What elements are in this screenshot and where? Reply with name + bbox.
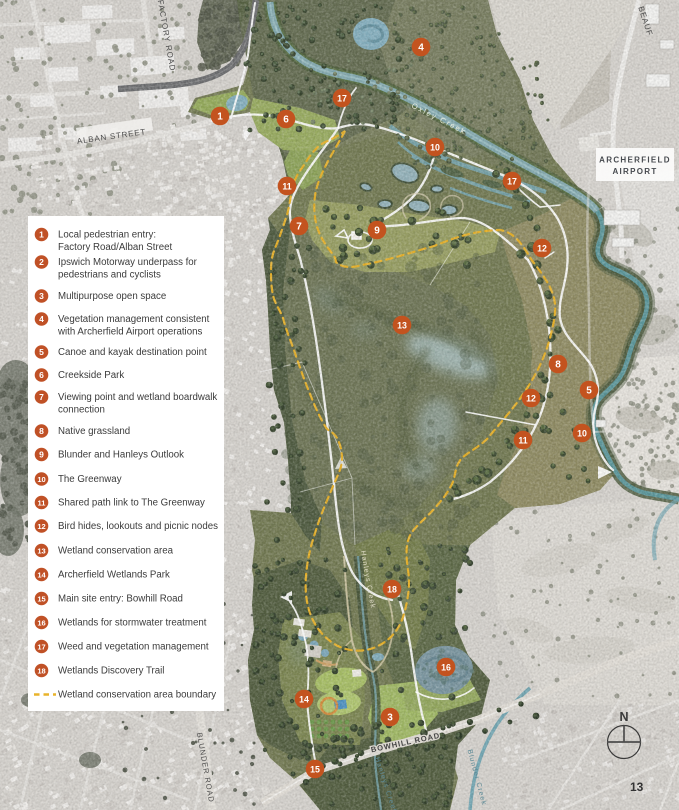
svg-text:Ipswich Motorway underpass for: Ipswich Motorway underpass for [58, 257, 198, 268]
svg-text:10: 10 [37, 475, 45, 484]
svg-text:AIRPORT: AIRPORT [612, 167, 657, 176]
svg-text:11: 11 [38, 498, 46, 507]
svg-text:9: 9 [374, 226, 380, 237]
svg-text:4: 4 [39, 314, 44, 324]
svg-text:15: 15 [37, 594, 45, 603]
svg-text:17: 17 [37, 642, 45, 651]
svg-text:Archerfield Wetlands Park: Archerfield Wetlands Park [58, 570, 170, 581]
svg-text:Blunder and Hanleys Outlook: Blunder and Hanleys Outlook [58, 450, 184, 461]
svg-text:3: 3 [387, 713, 393, 724]
svg-text:8: 8 [39, 426, 44, 436]
svg-text:8: 8 [555, 360, 561, 371]
svg-text:1: 1 [217, 112, 223, 123]
svg-text:1: 1 [39, 229, 44, 239]
svg-text:11: 11 [282, 182, 291, 192]
svg-text:10: 10 [577, 429, 587, 439]
svg-text:11: 11 [518, 436, 527, 446]
svg-text:3: 3 [39, 291, 44, 301]
svg-text:10: 10 [430, 143, 440, 153]
svg-text:Local pedestrian entry:: Local pedestrian entry: [58, 230, 156, 241]
svg-text:15: 15 [310, 765, 320, 775]
svg-text:Main site entry: Bowhill Road: Main site entry: Bowhill Road [58, 594, 183, 605]
svg-text:Creekside Park: Creekside Park [58, 370, 124, 381]
svg-text:Wetland conservation area: Wetland conservation area [58, 546, 174, 557]
svg-text:Bird hides, lookouts and picni: Bird hides, lookouts and picnic nodes [58, 521, 218, 532]
svg-text:12: 12 [526, 394, 536, 404]
svg-text:Shared path link to The Greenw: Shared path link to The Greenway [58, 498, 205, 509]
svg-text:16: 16 [441, 663, 451, 673]
svg-text:Native grassland: Native grassland [58, 426, 130, 437]
svg-text:Canoe and kayak destination po: Canoe and kayak destination point [58, 347, 207, 358]
svg-text:7: 7 [296, 222, 302, 233]
svg-text:Viewing point and wetland boar: Viewing point and wetland boardwalk [58, 392, 217, 403]
svg-text:12: 12 [37, 522, 45, 531]
svg-text:with Archerfield Airport opera: with Archerfield Airport operations [57, 327, 202, 338]
svg-text:Factory Road/Alban Street: Factory Road/Alban Street [58, 242, 172, 253]
svg-text:Weed and vegetation management: Weed and vegetation management [58, 642, 209, 653]
svg-text:17: 17 [337, 94, 347, 104]
svg-text:14: 14 [37, 570, 46, 579]
svg-text:13: 13 [37, 546, 45, 555]
svg-text:Wetlands Discovery Trail: Wetlands Discovery Trail [58, 666, 164, 677]
svg-text:4: 4 [418, 43, 424, 54]
svg-text:Wetlands for stormwater treatm: Wetlands for stormwater treatment [58, 618, 207, 629]
svg-text:13: 13 [397, 321, 407, 331]
svg-text:2: 2 [39, 257, 44, 267]
svg-text:17: 17 [507, 177, 517, 187]
svg-text:7: 7 [39, 392, 44, 402]
svg-text:16: 16 [37, 618, 45, 627]
svg-text:18: 18 [387, 585, 397, 595]
svg-text:N: N [619, 710, 628, 724]
svg-text:5: 5 [39, 347, 44, 357]
svg-text:6: 6 [39, 370, 44, 380]
svg-text:The Greenway: The Greenway [58, 474, 122, 485]
svg-text:13: 13 [630, 780, 644, 794]
svg-text:14: 14 [299, 695, 309, 705]
svg-text:ARCHERFIELD: ARCHERFIELD [599, 156, 671, 165]
svg-text:Wetland conservation area boun: Wetland conservation area boundary [58, 690, 216, 701]
svg-text:connection: connection [58, 405, 105, 416]
svg-text:5: 5 [586, 386, 592, 397]
svg-text:9: 9 [39, 449, 44, 459]
svg-text:Multipurpose open space: Multipurpose open space [58, 291, 166, 302]
svg-text:18: 18 [37, 666, 45, 675]
svg-text:6: 6 [283, 115, 289, 126]
svg-text:Vegetation management consiste: Vegetation management consistent [58, 314, 210, 325]
svg-text:12: 12 [537, 244, 547, 254]
svg-text:pedestrians and cyclists: pedestrians and cyclists [58, 270, 161, 281]
